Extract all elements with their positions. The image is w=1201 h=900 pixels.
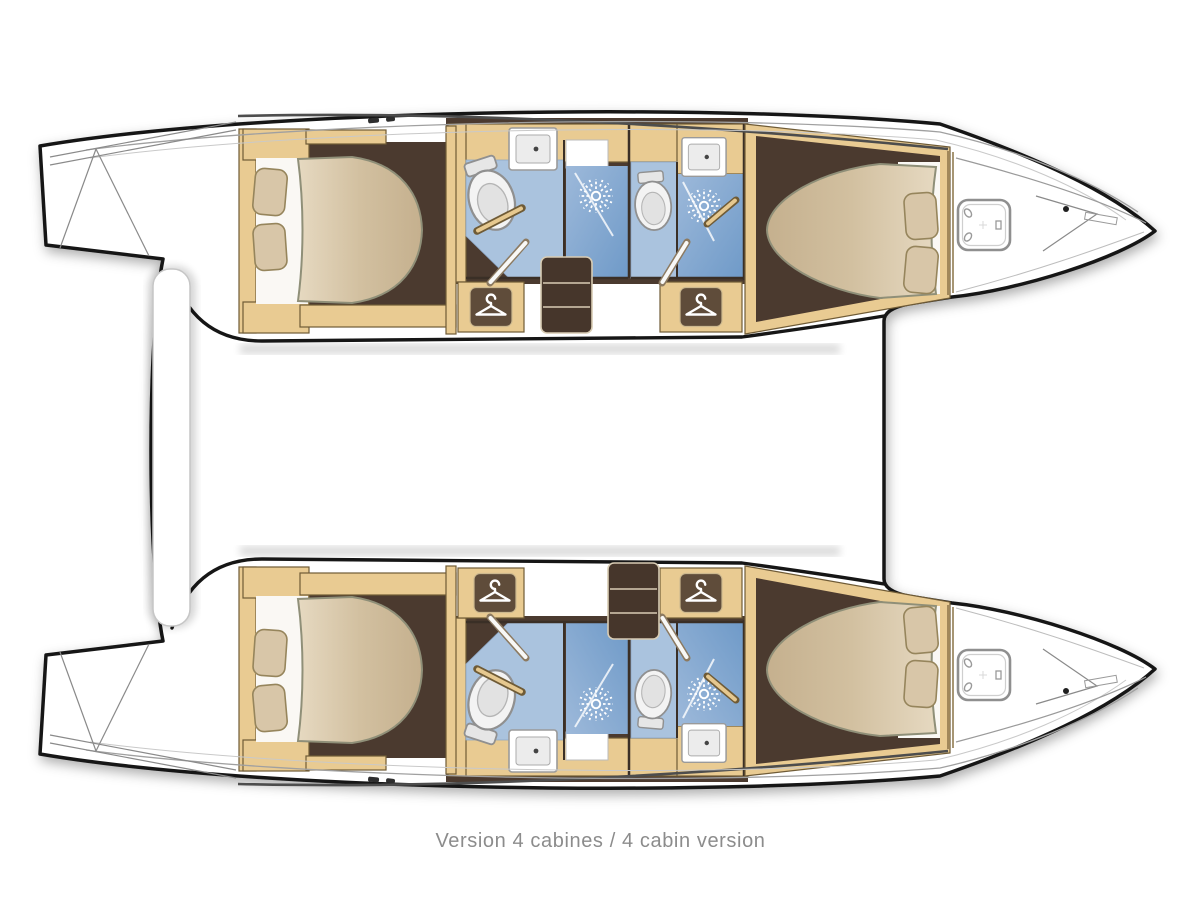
hanger-upper-fore <box>680 288 722 327</box>
aft-deck-bench <box>153 269 190 626</box>
stairs-upper-hull <box>541 257 592 333</box>
catamaran-floor-plan <box>0 0 1201 900</box>
hanger-lower-aft <box>474 574 516 613</box>
stairs-lower-hull <box>608 563 659 639</box>
hanger-upper-aft <box>470 288 512 327</box>
plan-caption: Version 4 cabines / 4 cabin version <box>0 830 1201 853</box>
hanger-lower-fore <box>680 574 722 613</box>
floor-plan-page: Version 4 cabines / 4 cabin version <box>0 0 1201 900</box>
